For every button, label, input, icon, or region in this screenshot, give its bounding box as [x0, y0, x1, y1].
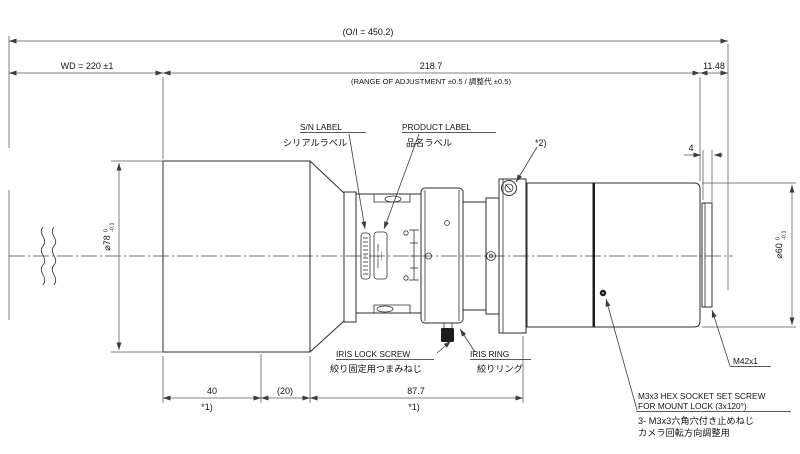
leader-m42	[712, 310, 730, 366]
iris-scale	[404, 230, 419, 280]
product-label-jp: 品名ラベル	[406, 137, 452, 148]
m42-thread	[702, 203, 712, 307]
iris-ring	[421, 188, 463, 323]
iris-ring-jp: 絞りリング	[477, 363, 523, 374]
dim-body-len-text: 87.7	[407, 386, 425, 396]
lens-body-outline: PRODUCT NAME ********	[163, 161, 712, 352]
set-screw-line2: FOR MOUNT LOCK (3x120°)	[638, 401, 747, 411]
iris-lock-jp: 絞り固定用つまみねじ	[330, 363, 422, 374]
product-label-plate: PRODUCT NAME ********	[374, 232, 387, 279]
leader-note2	[516, 147, 537, 182]
product-label-micro-text-2: ********	[380, 250, 384, 260]
set-screw-line1: M3x3 HEX SOCKET SET SCREW	[638, 391, 766, 401]
extension-lines	[111, 44, 796, 403]
m3-set-screw	[600, 290, 606, 296]
dim-adjust-note: (RANGE OF ADJUSTMENT ±0.5 / 調整代 ±0.5)	[351, 76, 512, 86]
dim-rear-dia-group: ⌀60 0 -0.1	[774, 230, 788, 258]
footnote1-body: *1)	[408, 402, 420, 412]
dim-wd-text: WD = 220 ±1	[61, 61, 114, 71]
dim-front-len-text: 40	[207, 386, 217, 396]
dim-thread-text: 4	[688, 143, 693, 153]
leader-set-screw	[606, 299, 637, 410]
orientation-band	[593, 183, 596, 327]
focus-barrel	[356, 194, 421, 313]
leader-sn-label	[349, 134, 365, 229]
footnote1-front: *1)	[201, 402, 213, 412]
dim-rear-dia-tol-lower: -0.1	[782, 230, 788, 240]
dim-front-dia-group: ⌀78 0 -0.1	[102, 222, 116, 250]
set-screw-line4: カメラ回転方向調整用	[638, 427, 730, 438]
dim-front-dia-text: ⌀78	[102, 235, 112, 250]
set-screw-line3: 3- M3x3六角穴付き止めねじ	[638, 415, 754, 426]
flange-ring	[344, 192, 356, 322]
dim-hood-len-text: (20)	[277, 386, 293, 396]
rear-barrel	[527, 183, 700, 327]
taper-cone	[310, 161, 344, 352]
drawing-canvas: PRODUCT NAME ********	[0, 0, 800, 454]
iris-lock-en: IRIS LOCK SCREW	[336, 349, 410, 359]
dim-rear-dia-text: ⌀60	[774, 243, 784, 258]
dim-ffd-text: 11.48	[703, 61, 725, 71]
sn-label-en: S/N LABEL	[300, 122, 342, 132]
footnote2-text: *2)	[535, 138, 547, 148]
dim-adjust-text: 218.7	[420, 61, 443, 71]
annotation-text: (O/I = 450.2) WD = 220 ±1 218.7 (RANGE O…	[61, 27, 791, 438]
iris-ring-en: IRIS RING	[470, 349, 509, 359]
leader-iris-lock	[437, 341, 451, 353]
top-screw-head	[385, 196, 401, 202]
front-barrel	[163, 161, 310, 352]
dim-front-dia-tol-lower: -0.1	[110, 222, 116, 232]
lens-mechanical-drawing: PRODUCT NAME ********	[0, 0, 800, 454]
iris-ring-dot	[445, 221, 450, 226]
dimension-lines	[9, 41, 792, 398]
dim-oi-text: (O/I = 450.2)	[343, 27, 394, 37]
leader-product-label	[384, 134, 419, 229]
m42-label: M42x1	[733, 356, 758, 366]
product-label-en: PRODUCT LABEL	[402, 122, 471, 132]
bottom-screw-head	[377, 306, 393, 312]
iris-lock-screw-knob	[441, 323, 454, 342]
sn-label-jp: シリアルラベル	[283, 138, 347, 148]
